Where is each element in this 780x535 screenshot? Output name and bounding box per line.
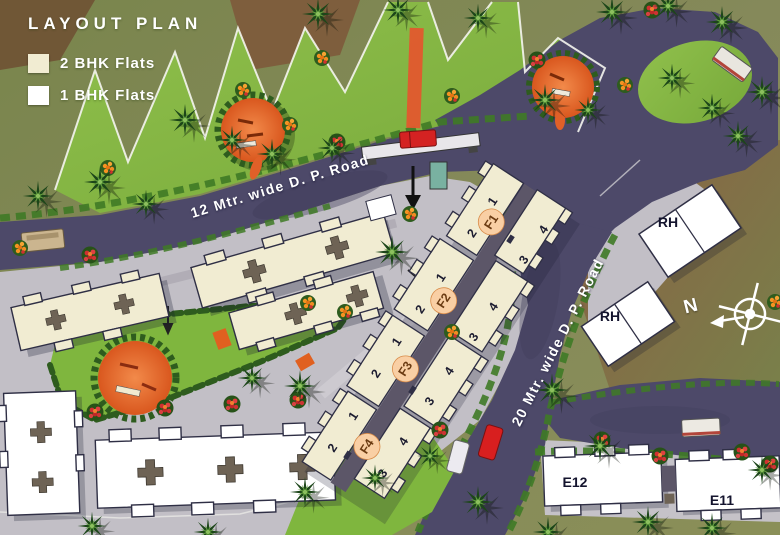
e12-block-label: E12 bbox=[550, 474, 600, 490]
legend-label-2bhk: 2 BHK Flats bbox=[60, 55, 155, 72]
e-block-courtyard bbox=[664, 494, 674, 504]
legend-item-2bhk: 2 BHK Flats bbox=[28, 54, 202, 73]
e11-block-label: E11 bbox=[697, 492, 747, 508]
legend-swatch-1bhk bbox=[28, 86, 49, 105]
e-block-connector bbox=[661, 465, 676, 491]
legend-item-1bhk: 1 BHK Flats bbox=[28, 86, 202, 105]
guard-booth bbox=[430, 162, 447, 189]
legend-swatch-2bhk bbox=[28, 54, 49, 73]
legend-label-1bhk: 1 BHK Flats bbox=[60, 87, 155, 104]
legend: LAYOUT PLAN 2 BHK Flats 1 BHK Flats bbox=[28, 14, 202, 105]
layout-plan-canvas: F1 F2 F3 F4 2 1 3 4 2 1 3 4 2 1 3 4 2 1 … bbox=[0, 0, 780, 535]
red-truck bbox=[399, 130, 436, 148]
rh-block-2-label: RH bbox=[590, 308, 630, 324]
page-title: LAYOUT PLAN bbox=[28, 14, 202, 34]
white-van-east bbox=[682, 418, 721, 437]
rh-block-1-label: RH bbox=[648, 214, 688, 230]
